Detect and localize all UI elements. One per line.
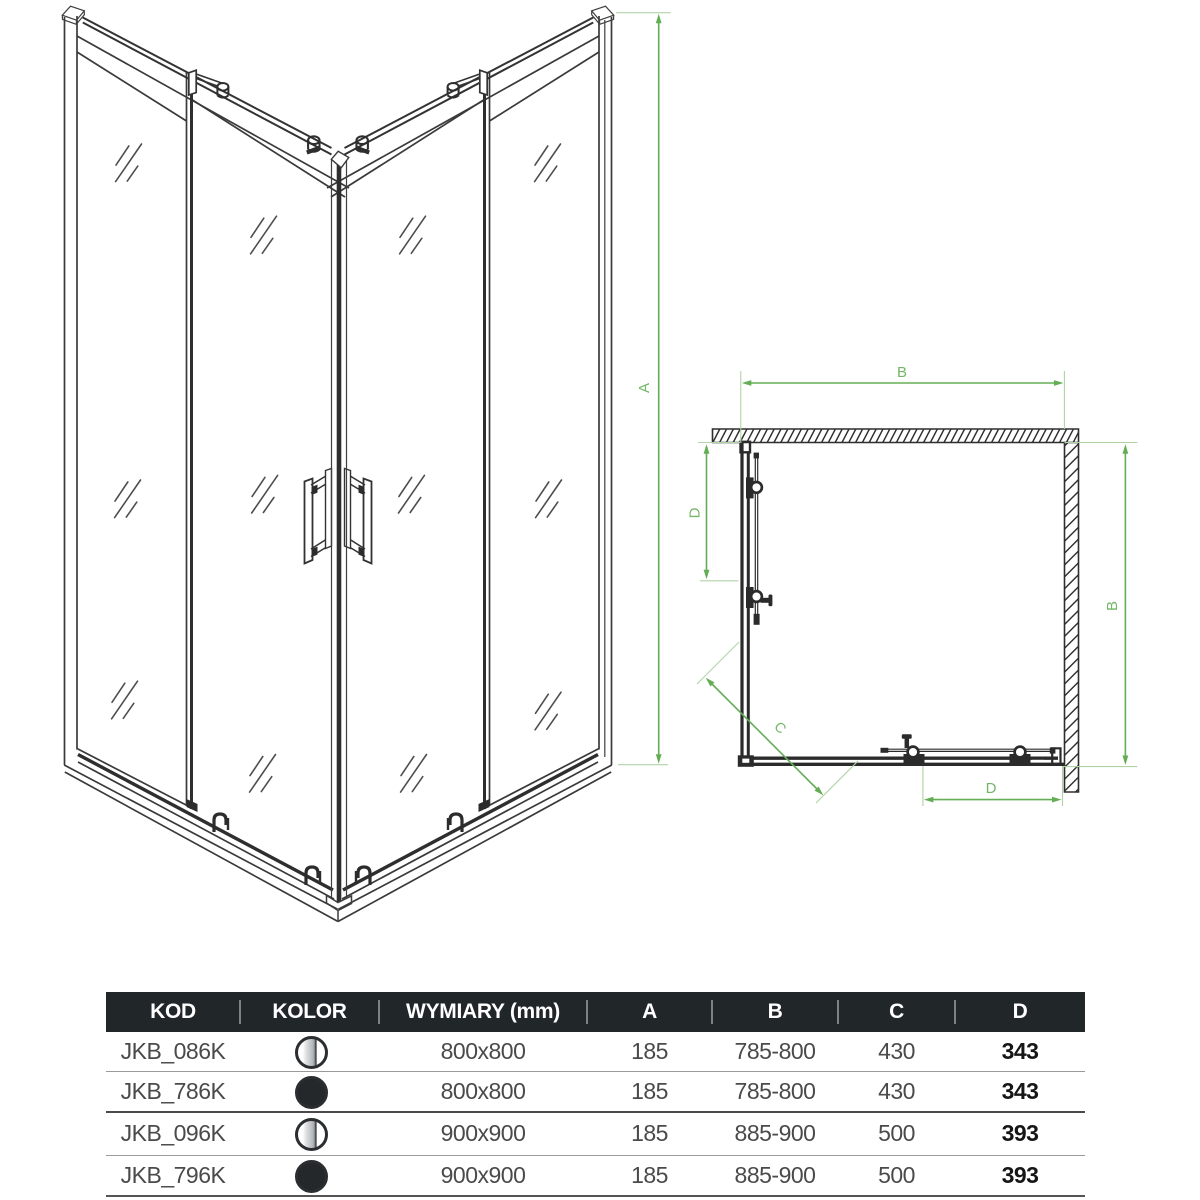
- svg-text:D: D: [687, 507, 704, 518]
- svg-text:D: D: [986, 780, 997, 797]
- svg-text:B: B: [1104, 601, 1121, 611]
- svg-text:C: C: [771, 718, 789, 736]
- svg-text:B: B: [897, 364, 907, 381]
- svg-text:A: A: [636, 383, 653, 393]
